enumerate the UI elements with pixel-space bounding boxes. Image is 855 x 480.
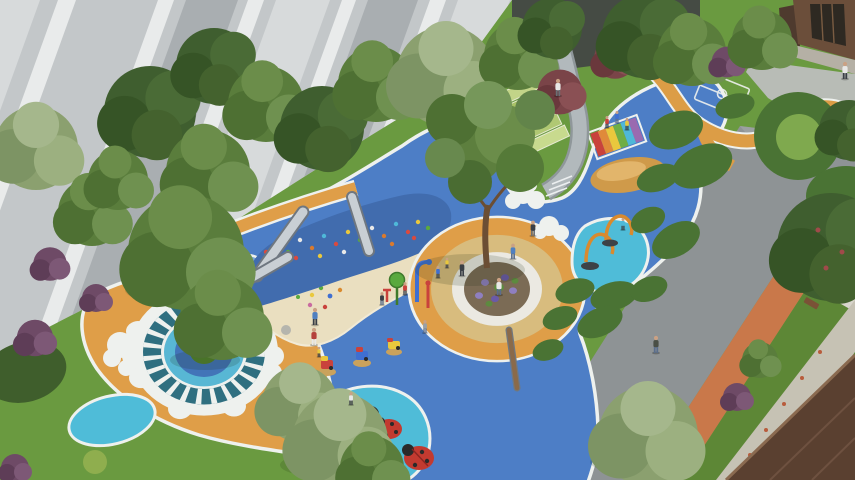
rendering-canvas: [0, 0, 855, 480]
bush: [83, 450, 107, 474]
sand-ball: [281, 325, 291, 335]
playground-rendering: [0, 0, 855, 480]
